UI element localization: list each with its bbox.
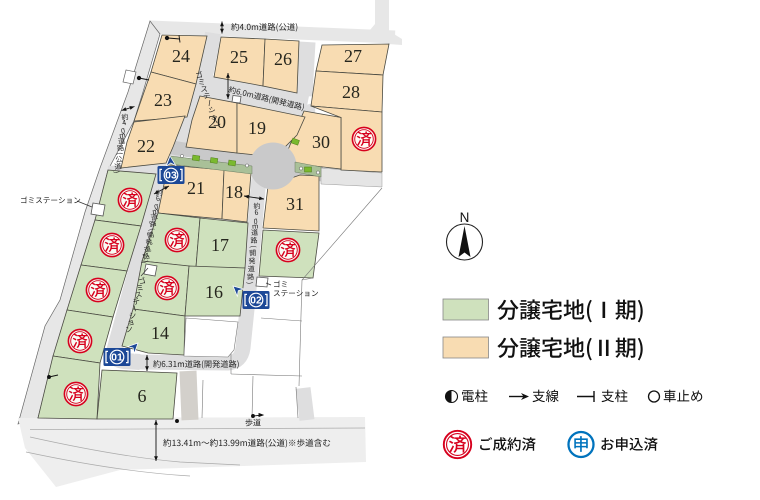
svg-text:26: 26 xyxy=(274,49,292,69)
svg-text:30: 30 xyxy=(312,132,330,152)
svg-text:17: 17 xyxy=(211,235,229,255)
svg-text:19: 19 xyxy=(248,118,266,138)
svg-text:16: 16 xyxy=(205,282,223,302)
svg-text:21: 21 xyxy=(187,178,205,198)
svg-text:6: 6 xyxy=(138,386,147,406)
svg-text:31: 31 xyxy=(286,194,304,214)
svg-text:02: 02 xyxy=(250,295,262,307)
svg-text:28: 28 xyxy=(342,82,360,102)
svg-text:18: 18 xyxy=(225,182,243,202)
svg-text:22: 22 xyxy=(137,136,155,156)
svg-text:14: 14 xyxy=(151,323,169,343)
svg-text:24: 24 xyxy=(172,46,190,66)
svg-text:27: 27 xyxy=(344,46,362,66)
svg-text:23: 23 xyxy=(154,90,172,110)
svg-text:01: 01 xyxy=(111,352,123,364)
svg-text:03: 03 xyxy=(165,170,177,182)
svg-text:N: N xyxy=(460,210,470,225)
svg-text:25: 25 xyxy=(230,47,248,67)
